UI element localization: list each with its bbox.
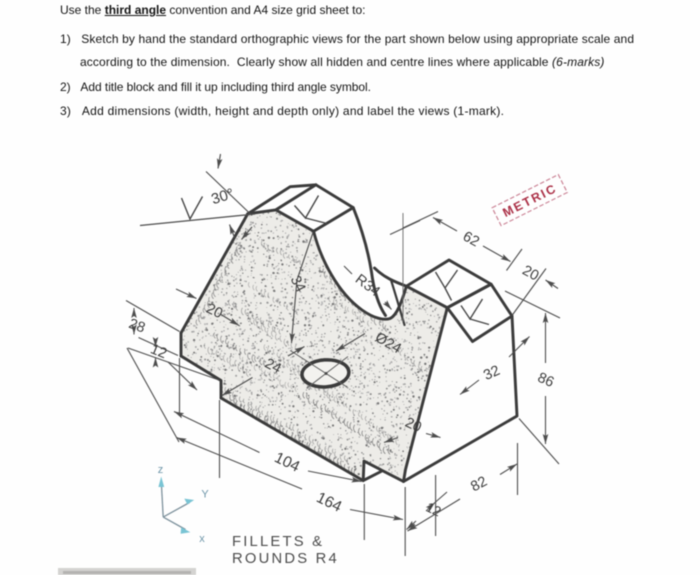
svg-text:ROUNDS R4: ROUNDS R4	[232, 551, 339, 567]
svg-text:FILLETS &: FILLETS &	[232, 534, 324, 550]
svg-text:METRIC: METRIC	[500, 181, 559, 220]
svg-text:20: 20	[520, 263, 542, 285]
svg-text:12: 12	[148, 341, 169, 362]
svg-text:12: 12	[423, 499, 443, 519]
svg-text:28: 28	[127, 316, 148, 337]
svg-text:62: 62	[460, 229, 482, 251]
svg-text:32: 32	[481, 363, 502, 384]
svg-text:104: 104	[272, 449, 303, 476]
svg-text:86: 86	[535, 370, 556, 391]
svg-text:R34: R34	[352, 271, 383, 300]
svg-text:30°: 30°	[209, 185, 236, 208]
svg-text:x: x	[199, 533, 205, 545]
svg-text:Y: Y	[201, 489, 209, 501]
svg-text:164: 164	[314, 489, 345, 516]
svg-text:z: z	[158, 464, 164, 476]
svg-text:82: 82	[468, 474, 490, 496]
